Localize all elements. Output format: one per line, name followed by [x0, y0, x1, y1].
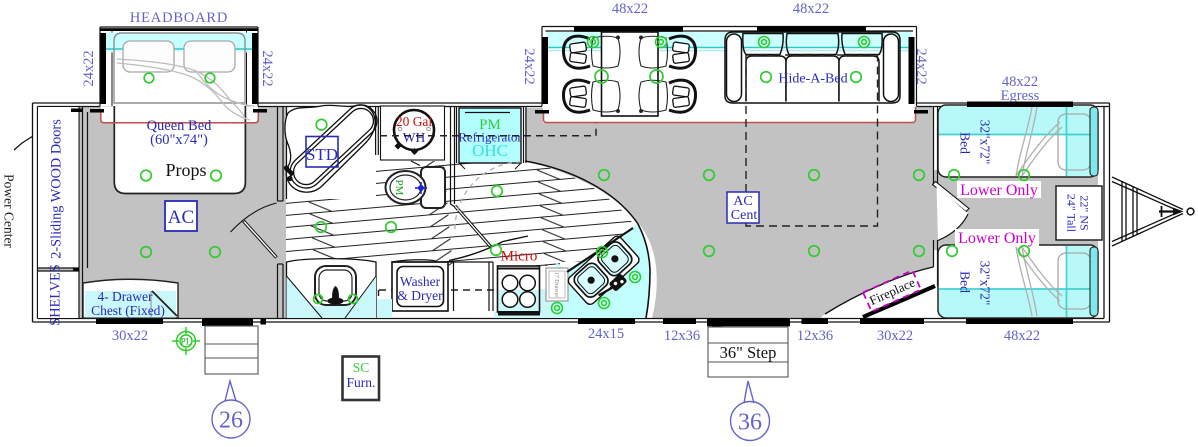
svg-text:4- Drawer: 4- Drawer — [97, 289, 153, 304]
svg-text:24x22: 24x22 — [521, 48, 537, 84]
svg-text:Lower Only: Lower Only — [960, 182, 1038, 199]
svg-text:OHC: OHC — [472, 141, 508, 160]
svg-text:24x22: 24x22 — [913, 48, 929, 84]
svg-text:20 Gal: 20 Gal — [396, 114, 433, 129]
svg-text:30x22: 30x22 — [112, 328, 148, 344]
svg-text:PM: PM — [393, 180, 405, 196]
svg-text:Props: Props — [165, 160, 206, 180]
svg-text:26: 26 — [219, 408, 243, 434]
svg-text:AC: AC — [168, 207, 194, 228]
svg-text:(60"x74"): (60"x74") — [150, 132, 208, 148]
svg-text:SC: SC — [353, 360, 370, 375]
svg-text:36" Step: 36" Step — [720, 343, 777, 362]
svg-text:Lower Only: Lower Only — [958, 230, 1036, 247]
svg-text:22" NS: 22" NS — [1078, 195, 1092, 230]
svg-text:Bed: Bed — [958, 132, 973, 154]
svg-text:24x22: 24x22 — [259, 50, 275, 86]
svg-text:24x22: 24x22 — [81, 50, 97, 86]
svg-text:PL: PL — [180, 338, 191, 348]
svg-text:Chest (Fixed): Chest (Fixed) — [91, 303, 165, 318]
svg-text:Bed: Bed — [958, 271, 973, 293]
svg-text:2-Sliding WOOD Doors: 2-Sliding WOOD Doors — [49, 119, 65, 259]
svg-text:30x22: 30x22 — [877, 328, 913, 344]
svg-text:48x22: 48x22 — [1004, 328, 1040, 344]
svg-text:24x15: 24x15 — [588, 326, 624, 342]
svg-text:Washer: Washer — [400, 274, 441, 289]
svg-text:24" Tall: 24" Tall — [1065, 194, 1079, 233]
svg-text:36: 36 — [738, 410, 762, 436]
svg-text:WH: WH — [403, 130, 426, 145]
svg-text:STD: STD — [306, 145, 338, 164]
svg-text:48x22: 48x22 — [612, 1, 648, 17]
svg-text:17 Drawer: 17 Drawer — [553, 272, 559, 298]
svg-text:HEADBOARD: HEADBOARD — [130, 10, 228, 26]
svg-text:32"x72": 32"x72" — [978, 261, 993, 306]
svg-text:Furn.: Furn. — [347, 375, 376, 390]
svg-text:12x36: 12x36 — [664, 328, 700, 344]
svg-text:& Dryer: & Dryer — [397, 288, 443, 303]
svg-text:Power Center: Power Center — [2, 174, 17, 248]
svg-text:Hide-A-Bed: Hide-A-Bed — [778, 72, 847, 87]
svg-text:Cent: Cent — [731, 208, 758, 223]
svg-text:AC: AC — [733, 194, 752, 209]
svg-text:48x22: 48x22 — [793, 1, 829, 17]
svg-text:32"x72": 32"x72" — [978, 120, 993, 165]
svg-text:12x36: 12x36 — [797, 328, 833, 344]
svg-text:SHELVES: SHELVES — [48, 264, 64, 325]
svg-text:Micro: Micro — [501, 249, 538, 265]
